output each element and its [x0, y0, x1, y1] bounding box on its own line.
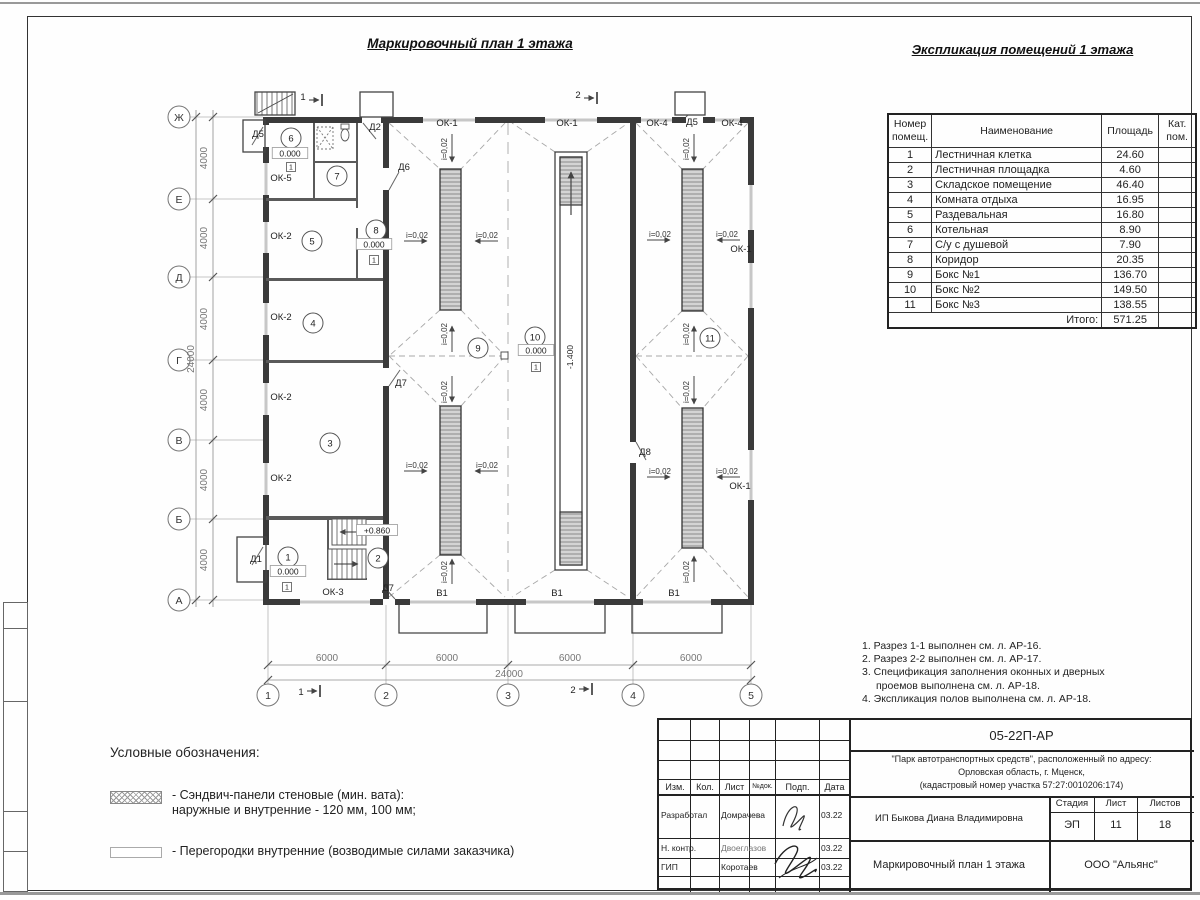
plan-label: 6000: [316, 653, 339, 664]
note-line: 2. Разрез 2-2 выполнен см. л. АР-17.: [862, 653, 1105, 666]
plan-label: ОК-2: [270, 392, 291, 403]
legend-item-sandwich-panels: - Сэндвич-панели стеновые (мин. вата): н…: [110, 788, 514, 818]
plan-label: Д5: [252, 129, 264, 140]
legend: Условные обозначения: - Сэндвич-панели с…: [110, 745, 514, 885]
plan-label: ОК-1: [436, 118, 457, 129]
plan-label: 0.000: [525, 346, 547, 356]
plan-label: 0.000: [277, 567, 299, 577]
plan-label: ОК-5: [270, 173, 291, 184]
legend-title: Условные обозначения:: [110, 745, 514, 760]
plan-label: i=0,02: [682, 380, 691, 403]
plan-label: Д: [175, 272, 182, 284]
tb-name-developer: Домрачева: [721, 810, 765, 820]
plan-label: Г: [176, 355, 182, 367]
plan-label: Е: [175, 194, 182, 206]
plan-label: ОК-4: [721, 118, 742, 129]
plan-label: ОК-1: [730, 244, 751, 255]
plan-label: 6000: [680, 653, 703, 664]
plan-label: 0.000: [279, 149, 301, 159]
plan-label: 1: [300, 92, 305, 103]
tb-project-line3: (кадастровый номер участка 57:27:0010206…: [851, 780, 1192, 790]
plan-label: 8: [373, 225, 378, 236]
plan-label: i=0,02: [682, 137, 691, 160]
expl-header: Номер помещ.: [888, 114, 932, 148]
tb-name-gip: Коротаев: [721, 862, 758, 872]
expl-row: 10Бокс №2149.50: [888, 283, 1196, 298]
tb-col-kol: Кол.: [691, 782, 719, 792]
plan-label: 4000: [199, 388, 210, 411]
note-line: 4. Экспликация полов выполнена см. л. АР…: [862, 693, 1105, 706]
plan-label: Д7: [395, 378, 407, 389]
plan-label: i=0,02: [440, 137, 449, 160]
axis-bubbles: ЖЕДГВБА12345: [168, 106, 762, 706]
tb-role-ncontrol: Н. контр.: [661, 843, 696, 853]
tb-client: ИП Быкова Диана Владимировна: [851, 813, 1047, 824]
legend-item-partitions: - Перегородки внутренние (возводимые сил…: [110, 844, 514, 859]
plan-label: 1: [534, 365, 538, 372]
title-block: Изм. Кол. Лист №док. Подп. Дата Разработ…: [657, 718, 1192, 890]
plan-label: Д6: [398, 162, 410, 173]
expl-row: 11Бокс №3138.55: [888, 298, 1196, 313]
tb-date-gip: 03.22: [821, 862, 842, 872]
plan-label: Б: [176, 514, 183, 526]
plan-label: 24000: [186, 345, 197, 373]
plan-label: i=0,02: [649, 467, 672, 476]
tb-company: ООО "Альянс": [1050, 859, 1192, 871]
tb-col-data: Дата: [820, 782, 849, 792]
opening-marks: ОК-5ОК-2ОК-2ОК-2ОК-2ОК-3ОК-1ОК-1ОК-4Д5ОК…: [250, 90, 752, 698]
notes-list: 1. Разрез 1-1 выполнен см. л. АР-16.2. Р…: [862, 640, 1105, 706]
plan-label: i=0,02: [406, 231, 429, 240]
plan-label: 2: [383, 690, 389, 702]
tb-name-ncontrol: Двоеглазов: [721, 843, 766, 853]
plan-label: 5: [309, 236, 314, 247]
tb-project-line1: "Парк автотранспортных средств", располо…: [851, 754, 1192, 764]
plan-label: 6: [288, 133, 293, 144]
expl-row: 7С/у с душевой7.90: [888, 238, 1196, 253]
tb-project-line2: Орловская область, г. Мценск,: [851, 767, 1192, 777]
plan-label: Ж: [174, 112, 184, 124]
legend-item1-line2: наружные и внутренние - 120 мм, 100 мм;: [172, 803, 416, 818]
plan-label: 4000: [199, 548, 210, 571]
legend-item2-text: - Перегородки внутренние (возводимые сил…: [172, 844, 514, 859]
plan-label: ОК-4: [646, 118, 667, 129]
plan-label: 6000: [436, 653, 459, 664]
plan-label: В1: [668, 588, 680, 599]
plan-label: 2: [570, 685, 575, 696]
crosshatch-swatch: [110, 791, 162, 804]
drawing-sheet: { "page": { "plan_title": "Маркировочный…: [0, 0, 1200, 900]
plan-label: i=0,02: [716, 230, 739, 239]
plan-label: ОК-3: [322, 587, 343, 598]
plan-label: i=0,02: [649, 230, 672, 239]
plan-label: ОК-2: [270, 231, 291, 242]
tb-role-gip: ГИП: [661, 862, 678, 872]
room-number-bubbles: 1234567891011: [278, 128, 720, 568]
note-line: 1. Разрез 1-1 выполнен см. л. АР-16.: [862, 640, 1105, 653]
plan-label: i=0,02: [406, 461, 429, 470]
plan-label: 4: [310, 318, 315, 329]
plan-label: i=0,02: [716, 467, 739, 476]
legend-item1-line1: - Сэндвич-панели стеновые (мин. вата):: [172, 788, 416, 803]
plan-label: 5: [748, 690, 754, 702]
plan-label: i=0,02: [682, 322, 691, 345]
plan-label: 1: [372, 258, 376, 265]
tb-sheets-label: Листов: [1138, 798, 1192, 809]
plan-label: i=0,02: [440, 560, 449, 583]
tb-col-izm: Изм.: [660, 782, 690, 792]
sanitary-fixtures: [317, 124, 349, 149]
plan-label: 4000: [199, 468, 210, 491]
tb-col-ndok: №док.: [750, 783, 775, 790]
tb-sheet-title: Маркировочный план 1 этажа: [851, 859, 1047, 871]
plan-label: i=0,02: [476, 231, 499, 240]
plan-label: -1.400: [565, 345, 575, 369]
plan-label: 2: [575, 90, 580, 101]
tb-stage-label: Стадия: [1050, 798, 1094, 809]
note-line: 3. Спецификация заполнения оконных и две…: [862, 666, 1105, 679]
plan-label: 1: [289, 165, 293, 172]
plan-label: В1: [436, 588, 448, 599]
expl-row: 4Комната отдыха16.95: [888, 193, 1196, 208]
plan-label: i=0,02: [440, 322, 449, 345]
note-line: проемов выполнена см. л. АР-18.: [876, 680, 1105, 693]
tb-sheets-value: 18: [1138, 819, 1192, 831]
plan-label: В: [175, 435, 182, 447]
plan-label: Д2: [369, 122, 381, 133]
plan-label: 1: [265, 690, 271, 702]
plan-label: 2: [375, 553, 380, 564]
elevation-marks: 0.0000.0000.0000.000+0.860-1.4001111: [270, 148, 575, 592]
plan-label: 6000: [559, 653, 582, 664]
plan-label: i=0,02: [440, 380, 449, 403]
plan-label: 4: [630, 690, 636, 702]
expl-row: 8Коридор20.35: [888, 253, 1196, 268]
plan-label: 24000: [495, 669, 523, 680]
expl-total-row: Итого:571.25: [888, 313, 1196, 329]
plan-label: 1: [285, 552, 290, 563]
tb-col-podp: Подп.: [776, 782, 819, 792]
signature-gip: [771, 838, 823, 890]
plan-label: ОК-1: [729, 481, 750, 492]
plan-label: 10: [530, 332, 541, 343]
expl-row: 5Раздевальная16.80: [888, 208, 1196, 223]
tb-role-developer: Разработал: [661, 810, 707, 820]
plan-label: В1: [551, 588, 563, 599]
tb-col-list: Лист: [720, 782, 749, 792]
plan-label: i=0,02: [682, 560, 691, 583]
plan-label: 0.000: [363, 240, 385, 250]
plan-label: Д7: [382, 583, 394, 594]
plan-label: +0.860: [364, 526, 391, 536]
plan-label: 3: [327, 438, 332, 449]
partition-swatch: [110, 847, 162, 858]
plan-label: А: [175, 595, 182, 607]
tb-date-developer: 03.22: [821, 810, 842, 820]
tb-doc-number: 05-22П-АР: [849, 728, 1194, 743]
expl-header: Наименование: [932, 114, 1102, 148]
expl-header: Кат. пом.: [1159, 114, 1197, 148]
plan-label: ОК-2: [270, 473, 291, 484]
expl-row: 6Котельная8.90: [888, 223, 1196, 238]
expl-row: 9Бокс №1136.70: [888, 268, 1196, 283]
plan-label: 3: [505, 690, 511, 702]
plan-label: 11: [705, 333, 715, 344]
plan-label: 4000: [199, 226, 210, 249]
expl-row: 3Складское помещение46.40: [888, 178, 1196, 193]
tb-sheet-value: 11: [1095, 819, 1137, 831]
plan-label: Д5: [686, 117, 698, 128]
plan-label: Д8: [639, 447, 651, 458]
plan-label: 4000: [199, 307, 210, 330]
expl-header: Площадь: [1102, 114, 1159, 148]
expl-row: 2Лестничная площадка4.60: [888, 163, 1196, 178]
tb-sheet-label: Лист: [1095, 798, 1137, 809]
plan-label: 7: [334, 171, 339, 182]
tb-stage-value: ЭП: [1050, 819, 1094, 831]
expl-row: 1Лестничная клетка24.60: [888, 148, 1196, 163]
plan-label: 9: [475, 343, 480, 354]
tb-date-ncontrol: 03.22: [821, 843, 842, 853]
plan-label: ОК-2: [270, 312, 291, 323]
plan-label: Д1: [250, 554, 262, 565]
partitions: [266, 123, 383, 580]
plan-label: i=0,02: [476, 461, 499, 470]
signature-developer: [777, 796, 819, 838]
plan-label: ОК-1: [556, 118, 577, 129]
plan-label: 1: [298, 687, 303, 698]
room-explication-table: Номер помещ.НаименованиеПлощадьКат. пом.…: [887, 113, 1197, 329]
plan-label: 4000: [199, 146, 210, 169]
plan-label: 1: [285, 585, 289, 592]
